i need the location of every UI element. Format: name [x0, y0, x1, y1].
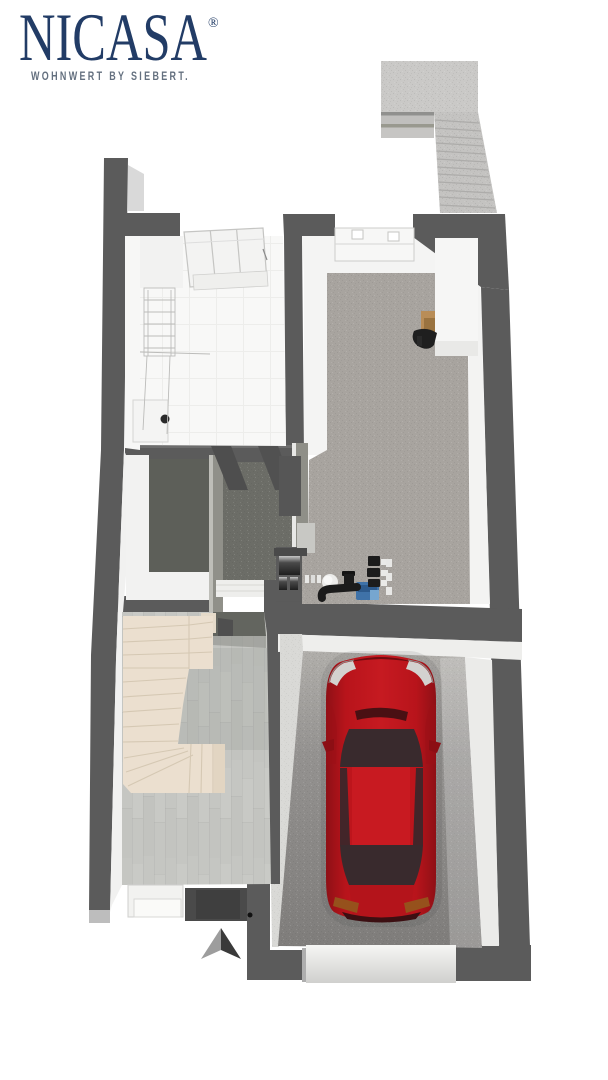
svg-text:®: ®	[208, 16, 219, 31]
svg-text:NICASA: NICASA	[19, 0, 207, 75]
svg-text:WOHNWERT BY SIEBERT.: WOHNWERT BY SIEBERT.	[31, 71, 190, 83]
